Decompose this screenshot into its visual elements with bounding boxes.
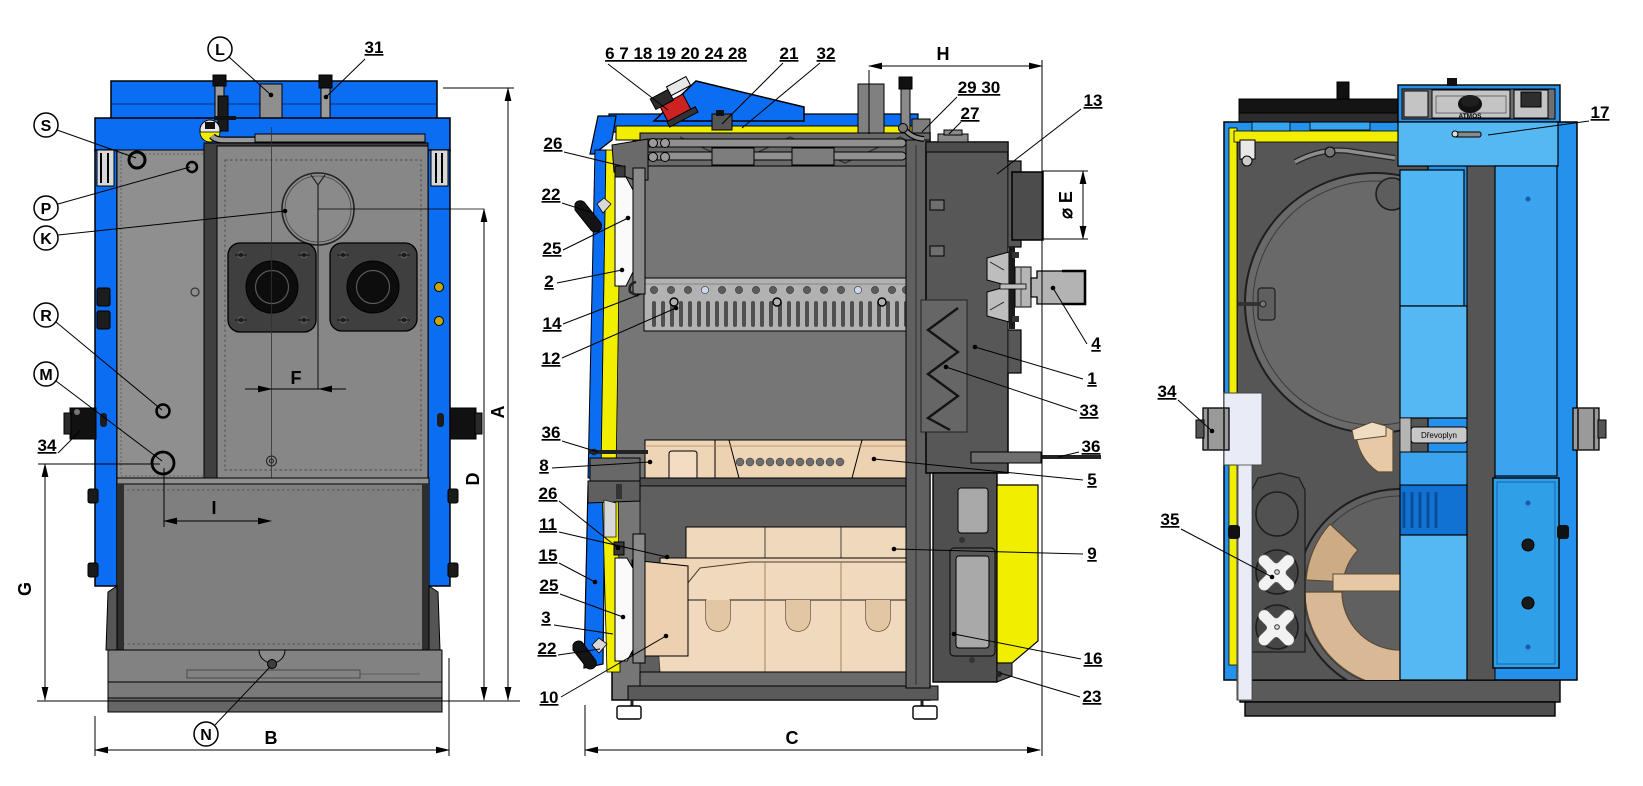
svg-text:⌀ E: ⌀ E xyxy=(1056,191,1076,219)
svg-text:36: 36 xyxy=(542,423,561,442)
svg-text:H: H xyxy=(937,44,950,64)
svg-text:9: 9 xyxy=(1087,544,1096,563)
svg-text:K: K xyxy=(40,231,52,248)
svg-text:ATMOS: ATMOS xyxy=(1459,113,1483,120)
svg-text:35: 35 xyxy=(1161,510,1180,529)
svg-text:26: 26 xyxy=(539,484,558,503)
svg-text:5: 5 xyxy=(1087,470,1096,489)
svg-text:R: R xyxy=(40,308,52,325)
svg-text:14: 14 xyxy=(543,314,562,333)
svg-text:B: B xyxy=(265,728,278,748)
svg-text:12: 12 xyxy=(542,349,561,368)
svg-text:32: 32 xyxy=(817,44,836,63)
svg-text:N: N xyxy=(200,727,212,744)
svg-text:25: 25 xyxy=(540,576,559,595)
svg-text:10: 10 xyxy=(540,688,559,707)
svg-text:Dřevoplyn: Dřevoplyn xyxy=(1421,431,1457,440)
svg-text:P: P xyxy=(41,201,52,218)
svg-text:31: 31 xyxy=(365,38,384,57)
svg-text:I: I xyxy=(211,498,216,518)
svg-text:6 7 18 19 20 24 28: 6 7 18 19 20 24 28 xyxy=(605,44,747,63)
svg-text:36: 36 xyxy=(1082,437,1101,456)
svg-text:21: 21 xyxy=(780,44,799,63)
svg-text:33: 33 xyxy=(1080,401,1099,420)
svg-text:23: 23 xyxy=(1083,687,1102,706)
svg-text:11: 11 xyxy=(539,515,557,534)
svg-text:25: 25 xyxy=(543,239,562,258)
svg-text:8: 8 xyxy=(539,456,548,475)
svg-text:D: D xyxy=(463,473,483,486)
svg-text:29 30: 29 30 xyxy=(958,78,1001,97)
svg-text:26: 26 xyxy=(544,134,563,153)
svg-text:34: 34 xyxy=(1158,382,1177,401)
svg-text:16: 16 xyxy=(1084,649,1103,668)
svg-text:A: A xyxy=(488,406,508,419)
svg-text:27: 27 xyxy=(961,104,980,123)
svg-text:34: 34 xyxy=(38,436,57,455)
svg-text:3: 3 xyxy=(541,608,550,627)
svg-text:L: L xyxy=(215,42,225,59)
svg-text:2: 2 xyxy=(544,272,553,291)
svg-text:22: 22 xyxy=(542,185,561,204)
svg-text:1: 1 xyxy=(1087,369,1096,388)
svg-text:G: G xyxy=(15,582,35,596)
svg-text:15: 15 xyxy=(539,546,558,565)
svg-text:C: C xyxy=(786,728,799,748)
svg-text:F: F xyxy=(291,368,302,388)
svg-text:17: 17 xyxy=(1591,103,1610,122)
svg-text:13: 13 xyxy=(1084,91,1103,110)
svg-text:4: 4 xyxy=(1091,334,1101,353)
svg-text:22: 22 xyxy=(538,639,557,658)
svg-text:M: M xyxy=(39,367,52,384)
svg-text:S: S xyxy=(41,118,52,135)
